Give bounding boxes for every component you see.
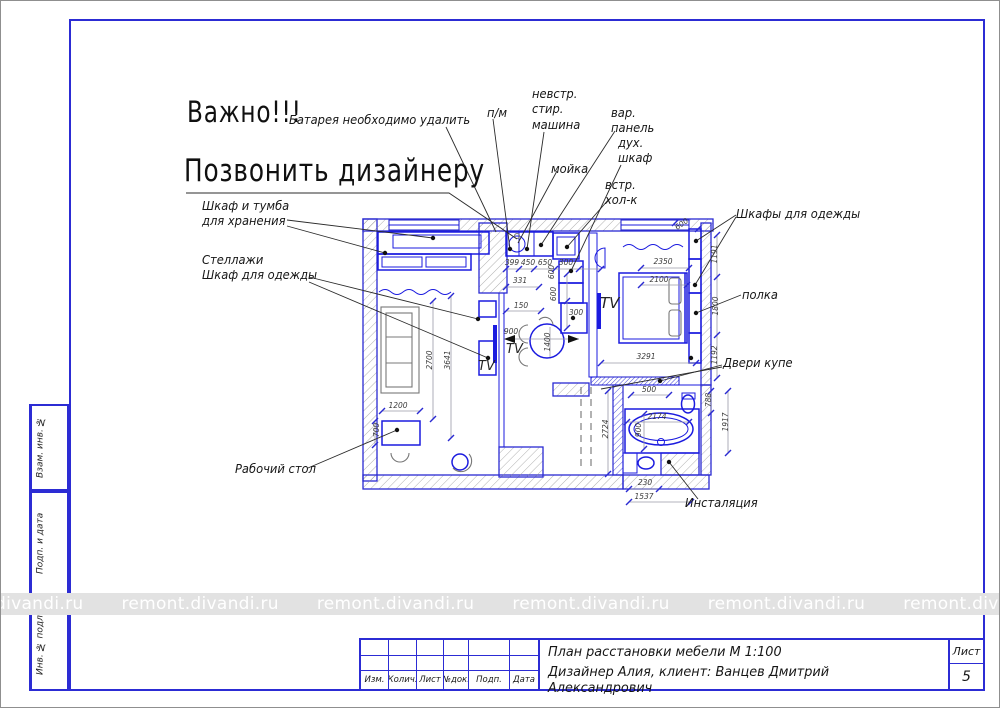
callout-shelf: полка (742, 287, 778, 302)
watermark-text: remont.divandi.ru (317, 594, 474, 614)
sheet-label: Лист (950, 640, 983, 664)
callout-oven: дух. шкаф (618, 135, 652, 166)
note-call-designer: Позвонить дизайнеру (184, 153, 485, 189)
tb-col-kolich: Колич. (389, 671, 417, 689)
callout-wardrobes: Шкафы для одежды (736, 206, 860, 221)
callout-pm: п/м (487, 105, 507, 120)
tb-col-data: Дата (510, 671, 538, 689)
callout-cooktop: вар. панель (611, 105, 654, 136)
margin-box-vzam: Взам. инв. № (29, 404, 69, 491)
callout-desk: Рабочий стол (235, 461, 316, 476)
tb-col-izm: Изм. (361, 671, 389, 689)
watermark-text: remont.divandi.ru (512, 594, 669, 614)
callout-cabinet: Шкаф и тумба для хранения (202, 198, 289, 229)
callout-shelving: Стеллажи Шкаф для одежды (202, 252, 317, 283)
margin-box-podp: Подп. и дата (29, 491, 69, 596)
watermark-band: remont.divandi.ruremont.divandi.ruremont… (1, 593, 1000, 615)
callout-sliding-doors: Двери купе (723, 355, 793, 370)
callout-washer: невстр. стир. машина (532, 86, 580, 132)
tb-col-ndok: №док. (444, 671, 469, 689)
callout-battery: Батарея необходимо удалить (289, 112, 470, 127)
tb-col-list: Лист (417, 671, 444, 689)
callout-installation: Инсталяция (685, 495, 758, 510)
watermark-text: remont.divandi.ru (121, 594, 278, 614)
doc-title: План расстановки мебели М 1:100 (548, 644, 922, 660)
callout-sink: мойка (551, 161, 588, 176)
note-important: Важно!!! (187, 95, 302, 129)
watermark-text: remont.divandi.ru (708, 594, 865, 614)
margin-box-label: Взам. инв. № (31, 406, 49, 489)
callout-fridge: встр. хол-к (605, 177, 637, 208)
doc-subtitle: Дизайнер Алия, клиент: Ванцев Дмитрий Ал… (548, 664, 922, 696)
watermark-text: remont.divandi.ru (903, 594, 1000, 614)
sheet-number: 5 (950, 664, 983, 689)
title-block-sheet: Лист 5 (948, 638, 985, 691)
title-block-revision-table: Изм. Колич. Лист №док. Подп. Дата (359, 638, 540, 691)
drawing-sheet: 3994506503003311506006003009001400235021… (0, 0, 1000, 708)
margin-box-label: Подп. и дата (31, 493, 49, 594)
title-block-main: План расстановки мебели М 1:100 Дизайнер… (538, 638, 950, 691)
watermark-text: remont.divandi.ru (1, 594, 83, 614)
tb-col-podp: Подп. (469, 671, 510, 689)
